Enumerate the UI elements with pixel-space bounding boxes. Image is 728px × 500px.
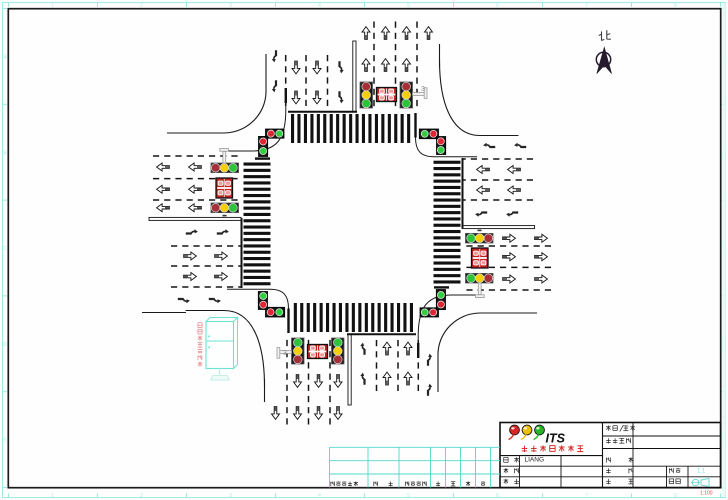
svg-text:LIANG: LIANG <box>525 457 545 464</box>
svg-text:1: 1 <box>51 493 54 499</box>
svg-text:5: 5 <box>407 493 410 499</box>
svg-text:ITS: ITS <box>546 432 566 446</box>
svg-text:2: 2 <box>140 493 143 499</box>
svg-text:B: B <box>3 150 7 156</box>
svg-text:3: 3 <box>229 493 232 499</box>
svg-text:A: A <box>3 55 7 61</box>
svg-text:E: E <box>3 438 7 444</box>
svg-text:8: 8 <box>674 493 677 499</box>
svg-text:1 1: 1 1 <box>697 469 706 475</box>
svg-text:4: 4 <box>318 493 321 499</box>
svg-text:3: 3 <box>283 350 287 357</box>
svg-text:3: 3 <box>421 86 425 93</box>
svg-text:C: C <box>3 246 7 252</box>
svg-text:7: 7 <box>585 493 588 499</box>
svg-text:6: 6 <box>496 493 499 499</box>
svg-text:1:100: 1:100 <box>700 491 713 497</box>
svg-text:D: D <box>3 342 7 348</box>
